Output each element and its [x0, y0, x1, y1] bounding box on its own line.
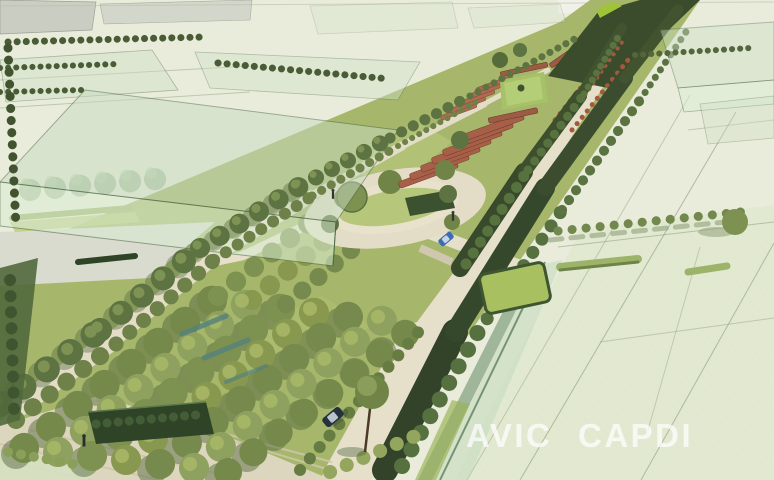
tree-canopy	[451, 131, 469, 149]
watermark-word-1: AVIC	[466, 417, 552, 454]
far-building-block	[100, 0, 252, 24]
tree-canopy	[439, 185, 457, 203]
large-tree-canopy	[378, 170, 402, 194]
tree-canopy-highlight	[357, 376, 377, 396]
watermark: AVIC CAPDI	[466, 417, 693, 454]
tree-canopy	[518, 85, 525, 92]
pedestrian-body	[452, 214, 454, 221]
rendering-canvas: AVIC CAPDI	[0, 0, 774, 480]
glass-box-top	[700, 96, 774, 144]
pedestrian-head	[332, 189, 335, 192]
tree-canopy	[492, 52, 508, 68]
pedestrian-head	[82, 434, 86, 438]
tree-shadow	[337, 447, 367, 457]
pedestrian	[452, 211, 455, 221]
glass-box-outline	[310, 2, 458, 34]
pedestrian-body	[332, 192, 334, 199]
pedestrian-body	[83, 438, 86, 447]
landscape-rendering: AVIC CAPDI	[0, 0, 774, 480]
pedestrian	[82, 434, 86, 446]
pedestrian	[332, 189, 335, 199]
watermark-word-2: CAPDI	[578, 417, 693, 454]
tree-canopy	[513, 43, 527, 57]
pedestrian-head	[452, 211, 455, 214]
tree-row	[10, 280, 14, 410]
tree-canopy	[435, 160, 455, 180]
large-tree-canopy	[722, 209, 748, 235]
